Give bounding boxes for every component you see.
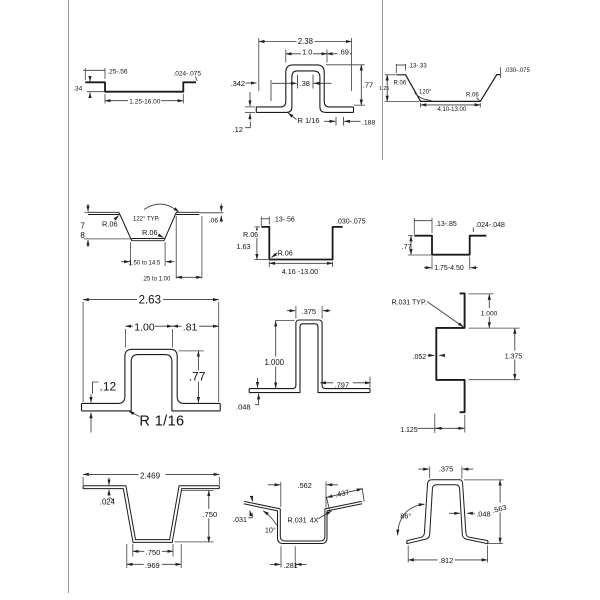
svg-text:.048: .048: [236, 403, 251, 412]
svg-text:.562: .562: [298, 481, 312, 490]
svg-text:.77: .77: [363, 81, 373, 90]
svg-text:R 1/16: R 1/16: [139, 414, 184, 430]
svg-text:2.38: 2.38: [298, 37, 313, 46]
svg-text:.024: .024: [100, 498, 116, 507]
svg-text:1.25-16.00: 1.25-16.00: [129, 98, 160, 105]
svg-text:R.06: R.06: [142, 228, 158, 237]
svg-text:R.031 TYP.: R.031 TYP.: [392, 300, 427, 307]
svg-text:120°: 120°: [419, 90, 432, 96]
svg-text:.38: .38: [300, 79, 310, 88]
svg-text:1.000: 1.000: [265, 358, 285, 367]
svg-text:.188: .188: [362, 119, 375, 126]
svg-text:7: 7: [80, 222, 85, 231]
svg-text:1.125: 1.125: [400, 427, 418, 434]
svg-text:.69: .69: [339, 48, 349, 57]
svg-text:2.63: 2.63: [139, 295, 161, 307]
svg-text:R.06: R.06: [394, 80, 407, 86]
svg-text:.375: .375: [302, 307, 317, 316]
svg-text:1.25: 1.25: [379, 86, 389, 92]
svg-text:.969: .969: [145, 561, 160, 570]
svg-text:10°: 10°: [265, 526, 276, 535]
svg-text:.812: .812: [439, 556, 453, 565]
svg-text:.750: .750: [202, 510, 217, 519]
svg-text:.030-.075: .030-.075: [505, 68, 531, 74]
svg-text:.06: .06: [209, 217, 219, 224]
svg-text:R.06: R.06: [278, 248, 293, 257]
svg-text:1.63: 1.63: [237, 242, 251, 251]
svg-text:.024-.048: .024-.048: [475, 222, 505, 229]
svg-text:R.06: R.06: [243, 230, 258, 239]
svg-text:.750: .750: [146, 548, 161, 557]
svg-text:.12: .12: [100, 380, 117, 394]
svg-text:.81: .81: [183, 321, 198, 333]
svg-text:1.000: 1.000: [481, 311, 498, 318]
svg-text:.25 to 1.00: .25 to 1.00: [142, 276, 171, 282]
svg-text:.052: .052: [413, 354, 427, 361]
svg-text:.34: .34: [73, 85, 82, 92]
svg-text:.77: .77: [189, 369, 206, 383]
svg-text:4X: 4X: [310, 515, 319, 524]
svg-text:1.50 to 14.5: 1.50 to 14.5: [129, 260, 161, 266]
svg-text:.77: .77: [402, 244, 412, 251]
svg-text:1.75-4.50: 1.75-4.50: [434, 265, 464, 272]
svg-text:R.06: R.06: [466, 93, 479, 99]
svg-text:R.06: R.06: [102, 220, 118, 229]
svg-text:.281: .281: [284, 561, 298, 570]
svg-text:.375: .375: [439, 464, 453, 473]
svg-text:.024-.075: .024-.075: [174, 70, 202, 77]
svg-text:.030-.075: .030-.075: [336, 219, 366, 226]
svg-text:.13-.85: .13-.85: [435, 221, 457, 228]
svg-text:R.031: R.031: [288, 515, 307, 524]
svg-text:.048: .048: [476, 510, 490, 519]
svg-text:.797: .797: [335, 380, 350, 389]
svg-text:1.0: 1.0: [302, 48, 312, 57]
svg-text:122° TYP.: 122° TYP.: [133, 217, 160, 223]
svg-text:.25-.56: .25-.56: [107, 68, 128, 75]
svg-text:.13-.33: .13-.33: [408, 64, 427, 70]
svg-text:4.16 -13.00: 4.16 -13.00: [282, 267, 318, 276]
svg-text:R 1/16: R 1/16: [298, 116, 320, 125]
svg-text:4.10-13.00: 4.10-13.00: [438, 107, 467, 113]
svg-text:2.469: 2.469: [140, 471, 161, 480]
svg-text:.342: .342: [231, 79, 246, 88]
svg-text:.12: .12: [233, 125, 243, 134]
svg-text:1.375: 1.375: [505, 353, 523, 360]
svg-text:.031: .031: [233, 515, 247, 524]
svg-text:.13-.56: .13-.56: [273, 217, 295, 224]
svg-text:1.00: 1.00: [134, 321, 155, 333]
